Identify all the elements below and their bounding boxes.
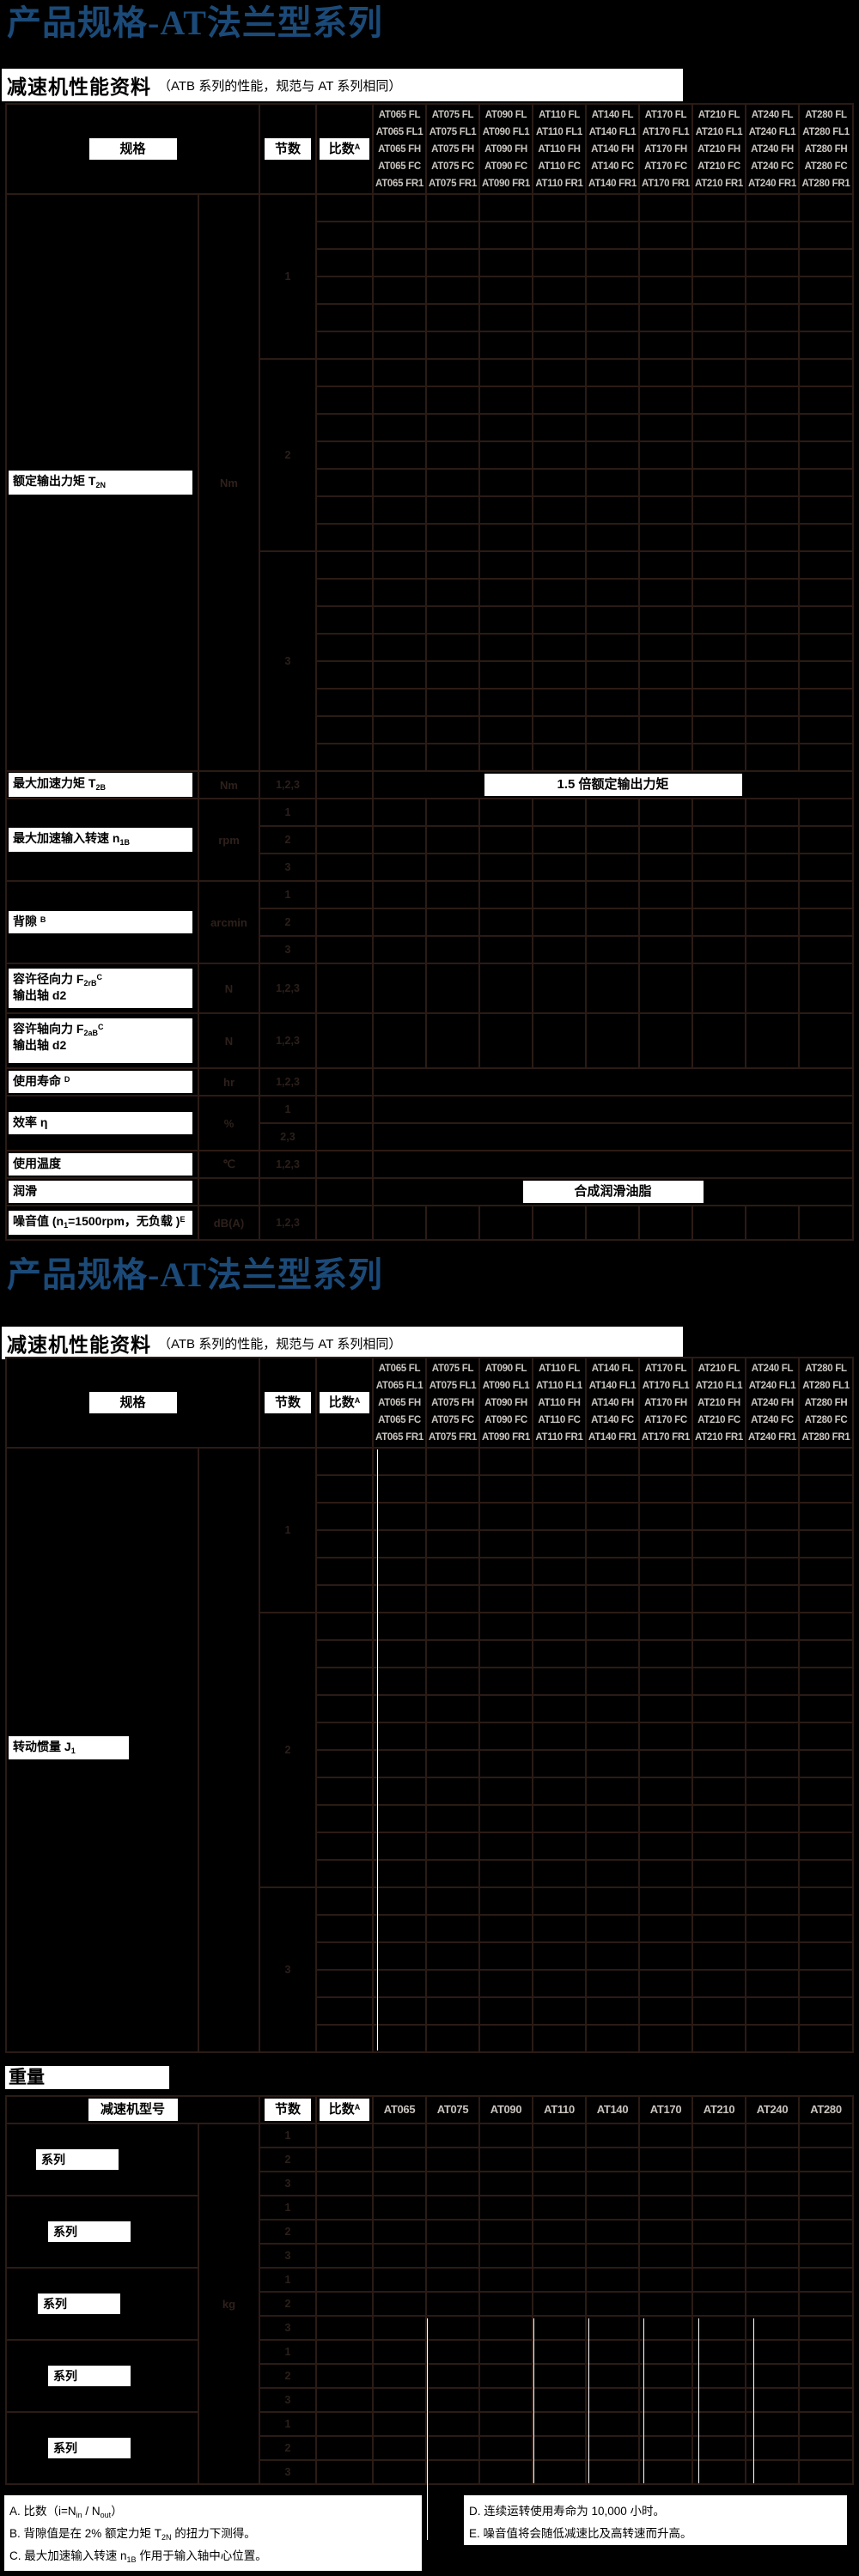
ratio-cell	[316, 2025, 373, 2052]
cell	[479, 1915, 533, 1942]
cell	[639, 826, 692, 854]
cell	[692, 2244, 746, 2268]
cell	[746, 936, 799, 963]
row-label-cell: 背隙 B	[6, 881, 198, 963]
cell	[586, 2436, 639, 2460]
cell	[479, 2196, 533, 2220]
cell	[639, 1503, 692, 1530]
cell	[639, 1777, 692, 1805]
cell	[799, 881, 853, 908]
unit-cell: ℃	[198, 1151, 259, 1178]
cell	[479, 2436, 533, 2460]
cell	[586, 2148, 639, 2172]
stage-cell: 3	[259, 2316, 316, 2340]
cell	[639, 689, 692, 716]
cell	[426, 826, 479, 854]
stage-cell: 3	[259, 854, 316, 881]
cell	[639, 2412, 692, 2436]
cell	[426, 1613, 479, 1640]
cell	[533, 524, 586, 551]
ratio-cell	[316, 1475, 373, 1503]
ratio-cell	[316, 744, 373, 771]
cell	[373, 469, 426, 496]
cell	[746, 2123, 799, 2148]
cell	[426, 2148, 479, 2172]
ratio-cell	[316, 469, 373, 496]
table-header-row: 规格节数比数AAT065 FLAT065 FL1AT065 FHAT065 FC…	[6, 104, 853, 194]
cell	[746, 2025, 799, 2052]
cell	[692, 1013, 746, 1068]
stage-cell: 2	[259, 2436, 316, 2460]
merged-value-box: 合成润滑油脂	[523, 1181, 704, 1203]
cell	[426, 386, 479, 414]
cell	[799, 1448, 853, 1475]
cell	[533, 1530, 586, 1558]
cell	[373, 1832, 426, 1860]
cell	[799, 2196, 853, 2220]
stage-cell: 3	[259, 2460, 316, 2484]
cell	[586, 908, 639, 936]
row-label-cell: 最大加速输入转速 n1B	[6, 799, 198, 881]
cell	[426, 551, 479, 579]
ratio-cell	[316, 963, 373, 1013]
cell	[426, 579, 479, 606]
cell	[799, 2412, 853, 2436]
row-label-box: 效率 η	[9, 1112, 192, 1134]
cell	[746, 304, 799, 331]
cell	[692, 469, 746, 496]
cell	[746, 1722, 799, 1750]
footnote-line: D. 连续运转使用寿命为 10,000 小时。	[469, 2500, 840, 2523]
stage-cell: 1	[259, 2340, 316, 2364]
cell	[639, 908, 692, 936]
ratio-cell	[316, 826, 373, 854]
cell	[692, 1530, 746, 1558]
cell	[639, 304, 692, 331]
cell	[426, 2244, 479, 2268]
cell	[533, 1206, 586, 1240]
cell	[373, 2292, 426, 2316]
cell	[479, 744, 533, 771]
cell	[692, 854, 746, 881]
ratio-cell	[316, 276, 373, 304]
cell	[799, 222, 853, 249]
cell	[479, 1970, 533, 1997]
cell	[639, 634, 692, 661]
cell	[799, 2025, 853, 2052]
cell	[799, 634, 853, 661]
cell	[586, 1860, 639, 1887]
cell	[479, 2148, 533, 2172]
cell	[692, 2172, 746, 2196]
cell	[479, 524, 533, 551]
artifact-line	[427, 2318, 428, 2540]
cell	[586, 1997, 639, 2025]
ratio-cell	[316, 1970, 373, 1997]
cell	[373, 1448, 426, 1475]
cell	[692, 744, 746, 771]
stage-cell: 1,2,3	[259, 1068, 316, 1096]
cell	[639, 222, 692, 249]
cell	[479, 2172, 533, 2196]
ratio-cell	[316, 2340, 373, 2364]
cell	[426, 1013, 479, 1068]
cell	[692, 2436, 746, 2460]
cell	[799, 1640, 853, 1668]
ratio-cell	[316, 1777, 373, 1805]
cell	[426, 2340, 479, 2364]
cell	[373, 2388, 426, 2412]
cell	[639, 1997, 692, 2025]
cell	[426, 1777, 479, 1805]
cell	[692, 2025, 746, 2052]
cell	[639, 606, 692, 634]
model-header-cell: AT110	[533, 2096, 586, 2123]
model-header-cell: AT170 FLAT170 FL1AT170 FHAT170 FCAT170 F…	[639, 1358, 692, 1448]
model-header-cell: AT210	[692, 2096, 746, 2123]
performance-header-strip-1: 减速机性能资料 （ATB 系列的性能，规范与 AT 系列相同）	[2, 69, 683, 101]
cell	[373, 496, 426, 524]
cell	[373, 744, 426, 771]
cell	[426, 908, 479, 936]
ratio-cell	[316, 1206, 373, 1240]
cell	[799, 1613, 853, 1640]
cell	[746, 2148, 799, 2172]
cell	[479, 2123, 533, 2148]
cell	[746, 331, 799, 359]
row-label-box: 背隙 B	[9, 911, 192, 933]
cell	[373, 2220, 426, 2244]
stages-header-box: 节数	[265, 2099, 311, 2120]
cell	[479, 2292, 533, 2316]
ratio-cell	[316, 249, 373, 276]
cell	[639, 249, 692, 276]
cell	[746, 414, 799, 441]
cell	[373, 386, 426, 414]
cell	[639, 881, 692, 908]
stage-cell: 3	[259, 2388, 316, 2412]
stage-cell: 2	[259, 908, 316, 936]
cell	[373, 1503, 426, 1530]
cell	[639, 2244, 692, 2268]
ratio-cell	[316, 1640, 373, 1668]
cell	[586, 1206, 639, 1240]
merged-value-cell	[373, 1096, 853, 1123]
ratio-cell	[316, 496, 373, 524]
artifact-line	[377, 1449, 378, 2050]
cell	[586, 1887, 639, 1915]
ratio-cell	[316, 2244, 373, 2268]
ratio-cell	[316, 1695, 373, 1722]
cell	[426, 1503, 479, 1530]
model-header-cell: AT210 FLAT210 FL1AT210 FHAT210 FCAT210 F…	[692, 104, 746, 194]
model-header-cell: AT240 FLAT240 FL1AT240 FHAT240 FCAT240 F…	[746, 1358, 799, 1448]
ratio-cell	[316, 716, 373, 744]
cell	[746, 908, 799, 936]
cell	[746, 1585, 799, 1613]
ratio-cell	[316, 1503, 373, 1530]
cell	[373, 1887, 426, 1915]
cell	[692, 2460, 746, 2484]
weight-table-grid: 减速机型号节数比数AAT065AT075AT090AT110AT140AT170…	[5, 2095, 854, 2485]
cell	[533, 854, 586, 881]
cell	[746, 1750, 799, 1777]
cell	[692, 2148, 746, 2172]
cell	[586, 331, 639, 359]
cell	[746, 2196, 799, 2220]
cell	[692, 963, 746, 1013]
cell	[426, 1750, 479, 1777]
stage-cell: 2	[259, 2220, 316, 2244]
footnote-line: B. 背隙值是在 2% 额定力矩 T2N 的扭力下测得。	[9, 2523, 415, 2545]
unit-cell: arcmin	[198, 881, 259, 963]
cell	[639, 1887, 692, 1915]
cell	[799, 1832, 853, 1860]
stage-cell: 2	[259, 2148, 316, 2172]
inertia-label-box: 转动惯量 J1	[9, 1736, 129, 1759]
cell	[533, 2412, 586, 2436]
cell	[692, 331, 746, 359]
cell	[799, 2340, 853, 2364]
cell	[692, 1558, 746, 1585]
cell	[692, 359, 746, 386]
cell	[533, 1915, 586, 1942]
cell	[586, 222, 639, 249]
cell	[799, 1695, 853, 1722]
cell	[479, 469, 533, 496]
cell	[639, 1668, 692, 1695]
model-header-cell: AT090	[479, 2096, 533, 2123]
cell	[373, 2268, 426, 2292]
cell	[426, 1668, 479, 1695]
cell	[479, 1997, 533, 2025]
cell	[799, 2244, 853, 2268]
row-label-cell: 容许径向力 F2rBC输出轴 d2	[6, 963, 198, 1013]
cell	[426, 249, 479, 276]
ratio-cell	[316, 881, 373, 908]
cell	[692, 386, 746, 414]
cell	[373, 2123, 426, 2148]
cell	[639, 2148, 692, 2172]
cell	[373, 1750, 426, 1777]
stage-cell: 1	[259, 1448, 316, 1613]
cell	[373, 634, 426, 661]
row-label-cell: 润滑	[6, 1178, 198, 1206]
merged-value-cell	[373, 1123, 853, 1151]
cell	[479, 1558, 533, 1585]
cell	[426, 2196, 479, 2220]
cell	[799, 2388, 853, 2412]
performance-header-title: 减速机性能资料	[7, 70, 151, 100]
merged-value-cell	[373, 1068, 853, 1096]
stage-cell: 2	[259, 359, 316, 551]
ratio-cell	[316, 1558, 373, 1585]
cell	[799, 936, 853, 963]
cell	[426, 799, 479, 826]
merged-value-box: 1.5 倍额定输出力矩	[484, 774, 742, 796]
cell	[586, 826, 639, 854]
stages-header-box: 节数	[265, 1392, 311, 1413]
cell	[373, 222, 426, 249]
stage-cell: 3	[259, 936, 316, 963]
cell	[799, 1013, 853, 1068]
cell	[586, 469, 639, 496]
cell	[799, 1503, 853, 1530]
ratio-cell	[316, 1750, 373, 1777]
cell	[533, 1668, 586, 1695]
ratio-cell	[316, 1668, 373, 1695]
cell	[373, 1585, 426, 1613]
stage-cell: 1,2,3	[259, 1013, 316, 1068]
ratio-header-box: 比数A	[320, 2099, 369, 2120]
cell	[639, 579, 692, 606]
row-label-cell: 最大加速力矩 T2B	[6, 771, 198, 799]
ratio-cell	[316, 2196, 373, 2220]
cell	[586, 1832, 639, 1860]
cell	[692, 1448, 746, 1475]
cell	[799, 963, 853, 1013]
cell	[639, 441, 692, 469]
cell	[426, 716, 479, 744]
cell	[533, 2268, 586, 2292]
cell	[586, 716, 639, 744]
cell	[746, 1997, 799, 2025]
row-label-box: 使用寿命 D	[9, 1071, 192, 1093]
cell	[373, 2340, 426, 2364]
cell	[746, 359, 799, 386]
cell	[639, 386, 692, 414]
cell	[533, 331, 586, 359]
cell	[639, 1860, 692, 1887]
ratio-cell	[316, 799, 373, 826]
ratio-header-box: 比数A	[320, 1392, 369, 1413]
cell	[639, 194, 692, 222]
footnote-line: C. 最大加速输入转速 n1B 作用于输入轴中心位置。	[9, 2545, 415, 2567]
stage-cell	[259, 1178, 316, 1206]
ratio-cell	[316, 1096, 373, 1123]
cell	[586, 1503, 639, 1530]
cell	[533, 1585, 586, 1613]
cell	[426, 1206, 479, 1240]
cell	[479, 2025, 533, 2052]
cell	[586, 936, 639, 963]
ratio-header-cell: 比数A	[316, 104, 373, 194]
performance-header-note-2: （ATB 系列的性能，规范与 AT 系列相同）	[158, 1334, 401, 1352]
ratio-cell	[316, 551, 373, 579]
stage-cell: 1	[259, 2412, 316, 2436]
cell	[426, 524, 479, 551]
stages-header-cell: 节数	[259, 1358, 316, 1448]
series-label-cell: 系列	[6, 2412, 198, 2484]
artifact-line	[698, 2318, 699, 2483]
performance-table: 规格节数比数AAT065 FLAT065 FL1AT065 FHAT065 FC…	[5, 103, 854, 1241]
cell	[586, 1558, 639, 1585]
ratio-cell	[316, 2172, 373, 2196]
stage-cell: 1	[259, 1096, 316, 1123]
ratio-cell	[316, 908, 373, 936]
series-label-box: 系列	[38, 2293, 120, 2314]
cell	[586, 1695, 639, 1722]
merged-value-cell	[373, 1151, 853, 1178]
cell	[373, 1668, 426, 1695]
stage-cell: 2,3	[259, 1123, 316, 1151]
cell	[639, 1206, 692, 1240]
cell	[373, 799, 426, 826]
cell	[533, 963, 586, 1013]
cell	[533, 2364, 586, 2388]
ratio-cell	[316, 1832, 373, 1860]
cell	[426, 936, 479, 963]
cell	[533, 222, 586, 249]
cell	[373, 1558, 426, 1585]
weight-table: 减速机型号节数比数AAT065AT075AT090AT110AT140AT170…	[5, 2095, 854, 2485]
cell	[586, 2025, 639, 2052]
cell	[746, 826, 799, 854]
cell	[373, 908, 426, 936]
model-label-box: 减速机型号	[88, 2099, 178, 2120]
cell	[799, 579, 853, 606]
cell	[799, 854, 853, 881]
stage-cell: 3	[259, 2172, 316, 2196]
cell	[692, 1722, 746, 1750]
cell	[479, 331, 533, 359]
ratio-cell	[316, 2460, 373, 2484]
cell	[533, 1722, 586, 1750]
cell	[746, 2244, 799, 2268]
cell	[639, 799, 692, 826]
cell	[533, 689, 586, 716]
row-label-cell: 使用温度	[6, 1151, 198, 1178]
cell	[373, 2196, 426, 2220]
cell	[639, 414, 692, 441]
ratio-cell	[316, 2220, 373, 2244]
cell	[426, 1722, 479, 1750]
ratio-cell	[316, 2436, 373, 2460]
cell	[586, 661, 639, 689]
cell	[479, 1585, 533, 1613]
cell	[533, 441, 586, 469]
row-label-box: 最大加速输入转速 n1B	[9, 828, 192, 851]
cell	[746, 1695, 799, 1722]
cell	[373, 716, 426, 744]
cell	[426, 2025, 479, 2052]
footnotes-left: A. 比数（i=Nin / Nout）B. 背隙值是在 2% 额定力矩 T2N …	[4, 2495, 422, 2571]
cell	[426, 331, 479, 359]
cell	[746, 689, 799, 716]
cell	[533, 496, 586, 524]
cell	[586, 1613, 639, 1640]
cell	[692, 1777, 746, 1805]
cell	[426, 2436, 479, 2460]
cell	[426, 2220, 479, 2244]
cell	[799, 826, 853, 854]
cell	[639, 1722, 692, 1750]
cell	[799, 716, 853, 744]
cell	[586, 2364, 639, 2388]
cell	[479, 551, 533, 579]
cell	[746, 2220, 799, 2244]
performance-table-1: 规格节数比数AAT065 FLAT065 FL1AT065 FHAT065 FC…	[5, 103, 854, 1241]
ratio-cell	[316, 1123, 373, 1151]
cell	[746, 634, 799, 661]
spec-header-cell: 规格	[6, 1358, 259, 1448]
row-label-cell: 噪音值 (n1=1500rpm，无负载 )E	[6, 1206, 198, 1240]
cell	[639, 1585, 692, 1613]
ratio-cell	[316, 1915, 373, 1942]
cell	[479, 2268, 533, 2292]
cell	[533, 1613, 586, 1640]
cell	[479, 2412, 533, 2436]
